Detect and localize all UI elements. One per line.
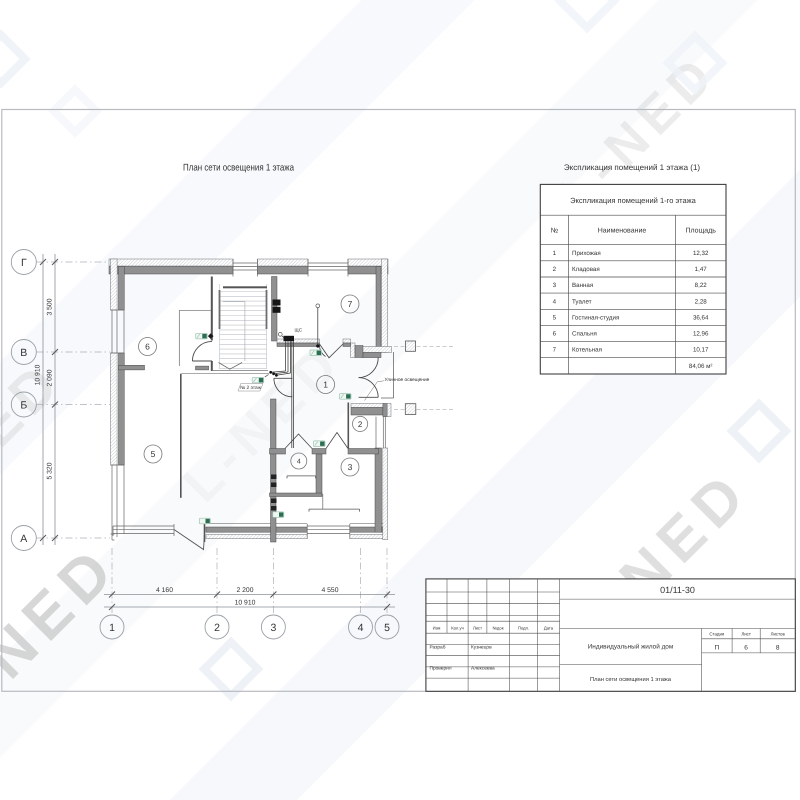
svg-text:План сети освещения 1 этажа: План сети освещения 1 этажа [183,163,295,174]
svg-text:1: 1 [323,380,328,390]
svg-text:Кузнецов: Кузнецов [471,645,492,651]
svg-text:4 550: 4 550 [321,587,338,594]
svg-text:1: 1 [109,622,115,634]
svg-text:Площадь: Площадь [685,228,716,235]
svg-text:Кладовая: Кладовая [572,266,600,273]
svg-text:А: А [20,533,27,545]
svg-text:4: 4 [553,298,557,305]
svg-text:Г: Г [21,257,27,269]
svg-text:12,32: 12,32 [693,250,709,257]
svg-text:План сети освещения 1 этажа: План сети освещения 1 этажа [590,677,672,683]
svg-text:Дата: Дата [544,626,554,631]
svg-text:2 200: 2 200 [236,587,253,594]
svg-text:Туалет: Туалет [572,298,592,305]
svg-text:10 910: 10 910 [35,364,42,385]
svg-text:3 500: 3 500 [47,298,54,315]
svg-text:6: 6 [145,342,150,352]
svg-text:В: В [20,347,27,359]
svg-text:Прихожая: Прихожая [572,250,601,257]
svg-text:№док: №док [492,626,503,631]
svg-text:10,17: 10,17 [693,347,709,354]
svg-text:4: 4 [297,459,301,466]
svg-text:5 320: 5 320 [47,462,54,479]
svg-text:2 090: 2 090 [47,369,54,386]
svg-text:Лист: Лист [473,626,482,631]
svg-text:5: 5 [151,449,156,459]
svg-text:84,06 м²: 84,06 м² [689,363,713,370]
svg-text:Индивидуальный жилой дом: Индивидуальный жилой дом [588,644,674,651]
svg-text:Изм: Изм [433,626,441,631]
svg-text:Подп.: Подп. [518,626,529,631]
svg-text:№ 2 этаж: № 2 этаж [240,385,262,391]
svg-text:Ванная: Ванная [572,282,593,289]
svg-text:1,47: 1,47 [695,266,708,273]
svg-text:Кол.уч: Кол.уч [451,626,464,631]
svg-text:Разраб: Разраб [430,645,446,651]
svg-text:3: 3 [553,282,557,289]
svg-text:3: 3 [348,462,353,472]
svg-text:6: 6 [553,331,557,338]
svg-text:Алексеева: Алексеева [471,666,495,672]
svg-text:№: № [551,228,559,235]
svg-text:10 910: 10 910 [235,600,256,607]
svg-text:ЩС: ЩС [295,328,303,333]
svg-text:3: 3 [270,622,276,634]
svg-text:Наименование: Наименование [598,228,647,235]
svg-text:Гостиная-студия: Гостиная-студия [572,314,619,321]
svg-text:5: 5 [553,314,557,321]
svg-text:12,96: 12,96 [693,331,709,338]
svg-text:Стадия: Стадия [709,631,725,636]
svg-text:Экспликация помещений 1-го эта: Экспликация помещений 1-го этажа [570,196,696,205]
svg-text:2: 2 [358,420,363,429]
svg-text:П: П [714,645,719,652]
svg-text:2: 2 [553,266,557,273]
svg-text:01/11-30: 01/11-30 [660,585,695,595]
svg-text:5: 5 [384,622,390,634]
svg-text:8,22: 8,22 [695,282,708,289]
svg-text:1: 1 [553,250,557,257]
svg-text:2,28: 2,28 [695,298,708,305]
svg-text:Котельная: Котельная [572,347,602,354]
svg-text:Листов: Листов [771,631,786,636]
svg-text:Проверил: Проверил [430,666,452,672]
svg-text:Уличное освещение: Уличное освещение [385,377,430,383]
svg-text:Экспликация помещений 1 этажа: Экспликация помещений 1 этажа (1) [564,163,701,172]
svg-text:6: 6 [744,645,748,652]
svg-text:Спальня: Спальня [572,331,597,338]
svg-text:8: 8 [776,645,780,652]
svg-text:7: 7 [348,299,353,309]
svg-text:7: 7 [553,347,557,354]
svg-text:36,64: 36,64 [693,314,709,321]
svg-text:Б: Б [20,399,27,411]
svg-text:2: 2 [214,622,220,634]
svg-text:4: 4 [358,622,364,634]
svg-text:4 160: 4 160 [156,587,173,594]
svg-text:Лист: Лист [741,631,751,636]
